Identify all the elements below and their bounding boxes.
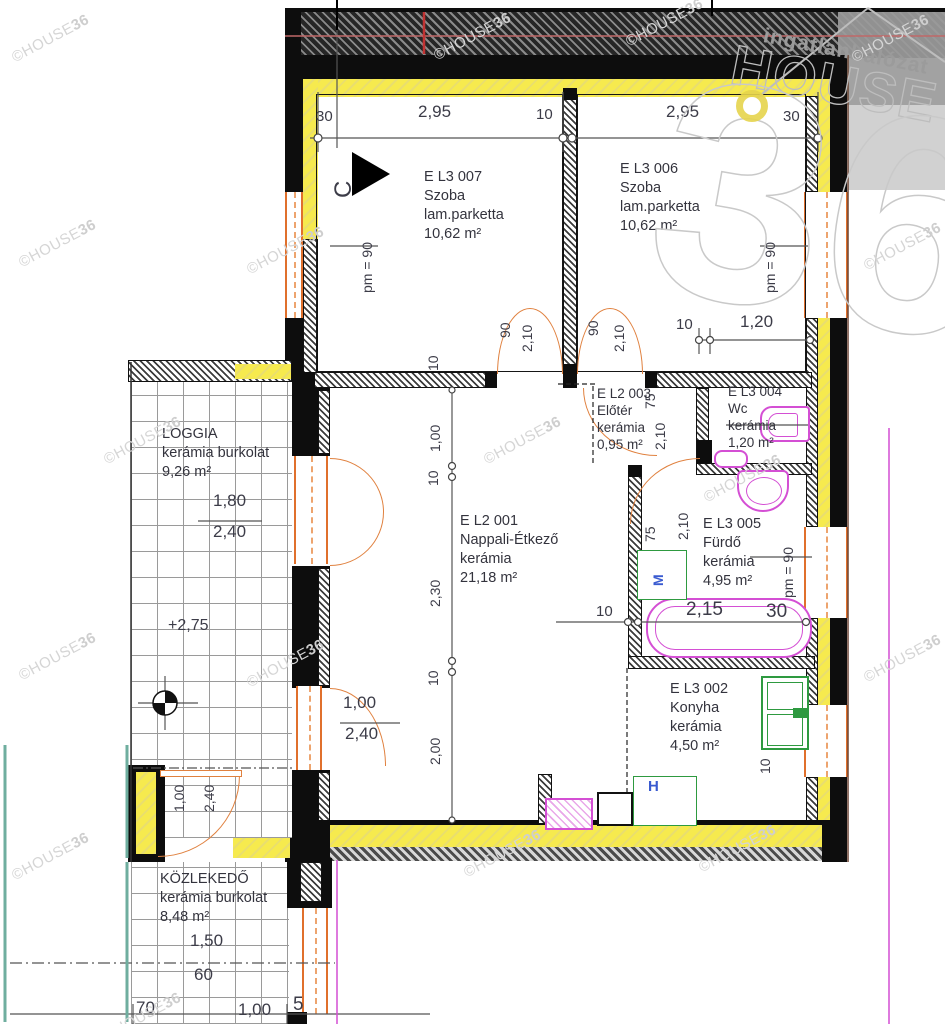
partition-cap-top [563, 88, 577, 100]
watermark-part2: 36 [69, 11, 93, 34]
parapet-label: pm = 90 [360, 242, 374, 293]
dimension-label: 2,15 [686, 600, 723, 619]
watermark-part2: 36 [921, 631, 945, 654]
room-label-line: Konyha [670, 699, 728, 718]
wall-east-hatch-1 [806, 96, 818, 192]
dimension-label: 10 [676, 317, 693, 332]
room-label-line: Előtér [597, 402, 651, 419]
dimension-label: 75 [643, 526, 657, 542]
watermark-part1: ©HOUSE [16, 637, 83, 684]
wall-east-3 [830, 618, 847, 705]
logo-backdrop [838, 12, 945, 105]
dimension-label: 10 [426, 355, 440, 371]
dimension-label: 10 [596, 604, 613, 619]
washing-machine-label: M [651, 574, 665, 586]
dimension-label: 1,50 [190, 932, 223, 949]
room-label: KÖZLEKEDŐkerámia burkolat8,48 m² [160, 870, 267, 927]
room-label: LOGGIAkerámia burkolat9,26 m² [162, 425, 269, 482]
entry-pillar-ins [136, 772, 156, 854]
room-label-line: kerámia [597, 419, 651, 436]
room-label-line: lam.parketta [424, 206, 504, 225]
wall-south-hatch [288, 847, 842, 861]
dimension-label: 30 [766, 602, 787, 621]
watermark-part2: 36 [541, 413, 565, 436]
room-label: E L3 006Szobalam.parketta10,62 m² [620, 160, 700, 236]
cabinet [597, 792, 633, 826]
room-label-line: E L3 002 [670, 680, 728, 699]
wall-cap [485, 372, 497, 388]
room-label-line: 21,18 m² [460, 569, 558, 588]
room-label-line: 8,48 m² [160, 908, 267, 927]
dimension-label: 2,40 [202, 785, 216, 812]
watermark-text: ©HOUSE36 [481, 413, 564, 468]
window-kitchen-east [804, 705, 848, 777]
dimension-label: 2,40 [345, 725, 378, 742]
wall-stub-3-hatch [318, 772, 330, 823]
watermark-part1: ©HOUSE [481, 421, 548, 468]
room-label-line: E L2 003 [597, 385, 651, 402]
door-arc-loggia-upper [330, 458, 384, 512]
dimension-label: 10 [426, 670, 440, 686]
dimension-label: 2,10 [676, 513, 690, 540]
insulation-east-1 [818, 79, 830, 192]
watermark-part2: 36 [69, 829, 93, 852]
logo-backdrop-lower [848, 105, 945, 190]
room-label-line: 0,95 m² [597, 436, 651, 453]
dimension-label: 10 [536, 107, 553, 122]
washbasin-small [714, 450, 748, 468]
kozlekedo-east-window [302, 908, 328, 1014]
room-label-line: KÖZLEKEDŐ [160, 870, 267, 889]
room-label-line: kerámia [670, 718, 728, 737]
dimension-label: 10 [426, 470, 440, 486]
dimension-label: 5 [293, 995, 304, 1014]
dimension-label: 70 [136, 999, 155, 1016]
door-arc-loggia-lower [330, 512, 384, 566]
wall-north [285, 55, 847, 79]
dimension-label: 1,80 [213, 492, 246, 509]
watermark-part2: 36 [76, 216, 100, 239]
loggia-north-wall-ins [235, 364, 291, 379]
dimension-label: 30 [316, 109, 333, 124]
room-label-line: Nappali-Étkező [460, 531, 558, 550]
watermark-text: ©HOUSE36 [861, 631, 944, 686]
section-marker-label: C [332, 181, 356, 198]
washbasin [737, 470, 789, 512]
room-label-line: 10,62 m² [424, 225, 504, 244]
watermark-part1: ©HOUSE [9, 837, 76, 884]
room-label: E L3 005Fürdőkerámia4,95 m² [703, 515, 761, 591]
dimension-label: 1,00 [343, 694, 376, 711]
kitchen-counter [761, 676, 809, 750]
room-label-line: 4,95 m² [703, 572, 761, 591]
room-label-line: E L3 005 [703, 515, 761, 534]
roof-slab-cap [285, 12, 301, 58]
room-label-line: kerámia burkolat [162, 444, 269, 463]
room-label-line: 9,26 m² [162, 463, 269, 482]
room-label-line: kerámia [728, 417, 782, 434]
dimension-label: 60 [194, 966, 213, 983]
window-bedroom-east [804, 192, 848, 318]
watermark-part2: 36 [76, 629, 100, 652]
parapet-label: pm = 90 [763, 242, 777, 293]
dimension-label: 1,00 [238, 1001, 271, 1018]
insulation-east-3 [818, 618, 830, 705]
room-label: E L3 004Wckerámia1,20 m² [728, 383, 782, 451]
wall-cap [628, 465, 642, 477]
room-label-line: E L3 004 [728, 383, 782, 400]
dimension-label: 1,00 [172, 785, 186, 812]
dimension-label: 90 [586, 320, 600, 336]
dimension-label: 90 [498, 322, 512, 338]
dimension-label: 2,10 [612, 325, 626, 352]
room-label-line: E L2 001 [460, 512, 558, 531]
loggia-single-door-frame [296, 686, 322, 770]
room-label-line: Wc [728, 400, 782, 417]
wall-stub-1-hatch [318, 390, 330, 454]
dimension-label: 2,10 [653, 423, 667, 450]
fridge [633, 776, 697, 826]
watermark-part1: ©HOUSE [861, 639, 928, 686]
wall-bedroom007-south [303, 372, 497, 388]
room-label-line: Fürdő [703, 534, 761, 553]
level-label: +2,75 [168, 618, 208, 634]
watermark-part1: ©HOUSE [16, 224, 83, 271]
watermark-text: ©HOUSE36 [16, 629, 99, 684]
insulation-entry [233, 838, 290, 858]
room-label-line: lam.parketta [620, 198, 700, 217]
wall-south-corner-east [822, 820, 847, 862]
room-label: E L2 001Nappali-Étkezőkerámia21,18 m² [460, 512, 558, 588]
parapet-label: pm = 90 [781, 547, 795, 598]
room-label: E L2 003Előtérkerámia0,95 m² [597, 385, 651, 453]
room-label-line: LOGGIA [162, 425, 269, 444]
dimension-label: 2,40 [213, 523, 246, 540]
watermark-text: ©HOUSE36 [9, 829, 92, 884]
room-label-line: 10,62 m² [620, 217, 700, 236]
dimension-label: 2,95 [666, 103, 699, 120]
insulation-east-2 [818, 318, 830, 527]
room-label-line: E L3 006 [620, 160, 700, 179]
room-label: E L3 007Szobalam.parketta10,62 m² [424, 168, 504, 244]
dimension-label: 2,30 [428, 580, 442, 607]
dimension-label: 2,00 [428, 738, 442, 765]
dimension-label: 2,95 [418, 103, 451, 120]
room-label-line: 1,20 m² [728, 434, 782, 451]
room-label-line: kerámia [460, 550, 558, 569]
window-bathroom-east [804, 527, 848, 618]
kozlekedo-east-wall-hatch [300, 862, 322, 902]
watermark-part2: 36 [921, 219, 945, 242]
watermark-part1: ©HOUSE [861, 227, 928, 274]
dimension-label: 2,10 [520, 325, 534, 352]
room-label-line: kerámia burkolat [160, 889, 267, 908]
wall-cap [303, 372, 315, 388]
room-label-line: kerámia [703, 553, 761, 572]
door-leaf-entrance [160, 770, 242, 777]
loggia-double-door-frame [294, 456, 328, 564]
window-bedroom-west [285, 192, 303, 318]
wall-west-upper [285, 55, 303, 192]
watermark-text: ©HOUSE36 [16, 216, 99, 271]
fridge-label: H [648, 779, 659, 794]
watermark-text: ©HOUSE36 [9, 11, 92, 66]
room-label-line: E L3 007 [424, 168, 504, 187]
wall-east-2 [830, 318, 847, 527]
room-label-line: Szoba [424, 187, 504, 206]
wall-stub-2-hatch [318, 568, 330, 686]
room-label-line: 4,50 m² [670, 737, 728, 756]
dimension-label: 1,20 [740, 313, 773, 330]
dimension-label: 30 [783, 109, 800, 124]
radiator [545, 798, 593, 830]
partition-bedrooms [563, 96, 577, 372]
wall-east-1 [830, 55, 847, 192]
dimension-label: 1,00 [428, 425, 442, 452]
watermark-text: ©HOUSE36 [861, 219, 944, 274]
watermark-part1: ©HOUSE [9, 19, 76, 66]
room-label: E L3 002Konyhakerámia4,50 m² [670, 680, 728, 756]
room-label-line: Szoba [620, 179, 700, 198]
partition-cap-bottom [563, 364, 577, 388]
dimension-label: 10 [758, 758, 772, 774]
floor-plan: 302,95102,9530Cpm = 90pm = 90902,10902,1… [0, 0, 945, 1024]
